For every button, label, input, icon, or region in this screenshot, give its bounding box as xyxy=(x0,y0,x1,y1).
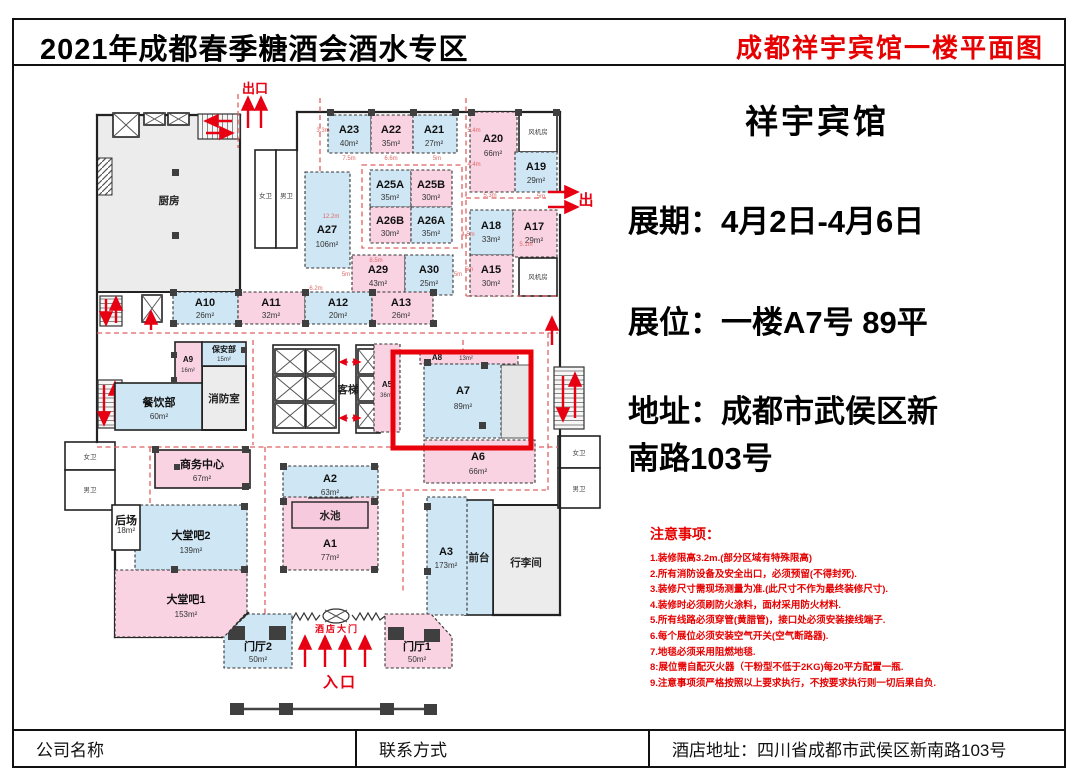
booth-a20: A2066m² xyxy=(470,112,517,192)
note-item: 5.所有线路必须穿管(黄腊管)，接口处必须安装接线端子. xyxy=(650,613,1050,629)
note-item: 6.每个展位必须安装空气开关(空气断路器). xyxy=(650,629,1050,645)
booth-a25b: A25B30m² xyxy=(411,170,452,207)
wc-female-label: 女卫 xyxy=(259,191,273,200)
exhibition-period: 展期：4月2日-4月6日 xyxy=(628,196,924,241)
note-item: 1.装修限高3.2m.(部分区域有特殊限高) xyxy=(650,551,1050,567)
booth-area: 50m² xyxy=(249,655,268,664)
booth-a10: A1026m² xyxy=(173,292,238,324)
dim-label: 4.4m xyxy=(467,162,480,168)
security-room: 保安部15m² xyxy=(202,342,246,366)
booth-id: A26A xyxy=(417,215,445,227)
booth-id: A20 xyxy=(483,133,503,145)
booth-id: 大堂吧2 xyxy=(171,528,210,542)
elevator-label: 客梯 xyxy=(337,383,359,396)
booth-a19: A1929m² xyxy=(515,152,557,192)
booth-id: A27 xyxy=(317,224,337,236)
kitchen-room: 厨房 xyxy=(97,115,240,292)
booth-id: A11 xyxy=(261,297,281,309)
booth-area: 30m² xyxy=(482,279,501,288)
fan-room-top: 风机房 xyxy=(519,112,557,152)
booth-a25a: A25A35m² xyxy=(370,170,411,207)
kitchen-label: 厨房 xyxy=(159,194,180,207)
booth-area: 173m² xyxy=(435,561,458,570)
booth-id: A25A xyxy=(376,179,404,191)
booth-a7: A789m² xyxy=(424,364,501,438)
booth-id: A18 xyxy=(481,220,501,232)
note-item: 7.地毯必须采用阻燃地毯. xyxy=(650,645,1050,661)
restrooms-left: 女卫 男卫 xyxy=(65,442,115,510)
booth-lobby1: 门厅150m² xyxy=(385,614,452,668)
booth-area: 60m² xyxy=(150,412,169,421)
booth-area: 153m² xyxy=(175,610,198,619)
hotel-name-title: 祥宇宾馆 xyxy=(745,95,889,143)
booth-area: 35m² xyxy=(422,229,441,238)
booth-id: A25B xyxy=(417,179,445,191)
booth-area: 139m² xyxy=(180,546,203,555)
address-line-1: 地址：成都市武侯区新 xyxy=(628,394,938,429)
note-item: 3.装修尺寸需现场测量为准.(此尺寸不作为最终装修尺寸). xyxy=(650,582,1050,598)
exit-right-label: 出 xyxy=(578,191,593,209)
booth-a11: A1132m² xyxy=(238,292,305,324)
booth-a3: A3173m² xyxy=(427,497,467,615)
booth-id: A21 xyxy=(424,124,444,136)
booth-id: A13 xyxy=(391,297,411,309)
booth-area: 63m² xyxy=(321,488,340,497)
booth-area: 32m² xyxy=(262,311,281,320)
booth-a26b: A26B30m² xyxy=(370,207,411,243)
booth-id: A22 xyxy=(381,124,401,136)
luggage-label: 行李间 xyxy=(509,556,542,569)
booth-lobby-bar2: 大堂吧2139m² xyxy=(135,505,247,570)
booth-id: 保安部 xyxy=(211,344,236,354)
wc-male-label: 男卫 xyxy=(84,486,98,494)
entrance: 入口 xyxy=(305,639,365,691)
dim-label: 5m xyxy=(465,267,473,273)
exit-top-label: 出口 xyxy=(242,81,268,96)
booth-area: 66m² xyxy=(469,467,488,476)
booth-a23: A2340m² xyxy=(328,115,371,153)
booth-area: 26m² xyxy=(196,311,215,320)
booth-id: A17 xyxy=(524,221,544,233)
stairs-right xyxy=(554,367,584,429)
lift-lobby xyxy=(501,365,531,438)
footer-bar: 公司名称 联系方式 酒店地址：四川省成都市武侯区新南路103号 xyxy=(12,729,1066,768)
booth-a30: A3025m² xyxy=(405,255,453,295)
wc-female-label: 女卫 xyxy=(84,452,98,461)
booth-area: 30m² xyxy=(422,193,441,202)
booth-a9: A916m² xyxy=(175,342,202,387)
restrooms-right: 女卫 男卫 xyxy=(558,436,600,508)
stairs-left-upper xyxy=(100,295,162,330)
restrooms-top: 女卫 男卫 xyxy=(255,150,297,248)
note-item: 2.所有消防设备及安全出口，必须预留(不得封死). xyxy=(650,567,1050,583)
booth-id: A29 xyxy=(368,264,388,276)
dim-label: 5.3m xyxy=(483,193,496,199)
booth-id: A3 xyxy=(439,546,453,558)
booth-area: 89m² xyxy=(454,402,473,411)
booth-id: A15 xyxy=(481,264,501,276)
booth-area: 27m² xyxy=(425,139,444,148)
booth-id: 门厅2 xyxy=(244,639,272,653)
booth-area: 29m² xyxy=(527,176,546,185)
backyard-room: 后场18m² xyxy=(112,505,140,550)
booth-id: A10 xyxy=(195,297,215,309)
booth-a12: A1220m² xyxy=(305,292,372,324)
booth-a5: A536m² xyxy=(374,344,400,432)
booth-location-line: 展位：一楼A7号 89平 xyxy=(628,297,928,342)
booth-area: 40m² xyxy=(340,139,359,148)
guest-elevators: 客梯 xyxy=(273,345,380,433)
front-desk-label: 前台 xyxy=(469,551,490,564)
booth-id: A2 xyxy=(323,473,337,485)
booth-area: 43m² xyxy=(369,279,388,288)
booth-id: 门厅1 xyxy=(403,639,431,653)
dim-label: 7.5m xyxy=(342,156,355,162)
booth-area: 33m² xyxy=(482,235,501,244)
dim-label: 5m xyxy=(342,272,350,278)
booth-area: 50m² xyxy=(408,655,427,664)
booth-area: 77m² xyxy=(321,553,340,562)
luggage-room: 行李间 xyxy=(493,505,560,615)
booth-area: 15m² xyxy=(217,357,231,363)
booth-area: 106m² xyxy=(316,240,339,249)
entrance-label: 入口 xyxy=(323,674,357,691)
booth-id: A23 xyxy=(339,124,359,136)
dim-label: 3.3m xyxy=(316,128,329,134)
booth-id: A30 xyxy=(419,264,439,276)
dim-label: 6.6m xyxy=(384,156,397,162)
booth-area: 67m² xyxy=(193,474,212,483)
dim-label: 5m xyxy=(537,194,545,200)
wc-male-label: 男卫 xyxy=(280,192,294,200)
booth-a21: A2127m² xyxy=(413,115,457,153)
booth-area: 13m² xyxy=(459,356,473,362)
booth-area: 35m² xyxy=(382,139,401,148)
dim-label: 5.4m xyxy=(467,128,480,134)
booth-id: A1 xyxy=(323,538,337,550)
booth-id: A12 xyxy=(328,297,348,309)
footer-contact-label: 联系方式 xyxy=(357,731,650,766)
header-right-title: 成都祥宇宾馆一楼平面图 xyxy=(736,28,1044,65)
footer-hotel-address: 酒店地址：四川省成都市武侯区新南路103号 xyxy=(650,731,1064,766)
booth-id: 商务中心 xyxy=(180,457,224,471)
hotel-gate: 酒店大门 xyxy=(292,609,385,634)
note-item: 4.装修时必须刷防火涂料，面材采用防火材料. xyxy=(650,598,1050,614)
catering-room: 餐饮部60m² xyxy=(115,383,202,430)
business-center: 商务中心67m² xyxy=(155,450,250,488)
booth-a22: A2235m² xyxy=(371,115,413,153)
address-line: 地址：成都市武侯区新 南路103号 xyxy=(628,388,1028,482)
address-line-2: 南路103号 xyxy=(628,441,773,476)
booth-area: 16m² xyxy=(181,368,195,374)
booth-area: 18m² xyxy=(117,526,136,535)
booth-a26a: A26A35m² xyxy=(411,207,452,243)
note-item: 9.注意事项须严格按照以上要求执行，不按要求执行则一切后果自负. xyxy=(650,676,1050,692)
booth-id: A19 xyxy=(526,161,546,173)
header-left-title: 2021年成都春季糖酒会酒水专区 xyxy=(40,26,469,68)
hotel-gate-label: 酒店大门 xyxy=(315,623,359,634)
dim-label: 6.2m xyxy=(309,286,322,292)
poster-page: 2021年成都春季糖酒会酒水专区 成都祥宇宾馆一楼平面图 祥宇宾馆 展期：4月2… xyxy=(0,0,1080,780)
booth-id: A9 xyxy=(183,355,194,364)
front-desk: 前台 xyxy=(465,500,493,615)
fan-room-label: 风机房 xyxy=(528,272,548,281)
booth-a17: A1729m² xyxy=(513,210,557,257)
booth-id: 后场 xyxy=(115,513,137,527)
dim-label: 4.5m xyxy=(461,232,474,238)
booth-a27: A27106m² xyxy=(305,172,350,268)
fire-control-room: 消防室 xyxy=(202,366,246,430)
booth-a15: A1530m² xyxy=(470,255,513,296)
pool-label: 水池 xyxy=(319,509,341,522)
notes-block: 注意事项： 1.装修限高3.2m.(部分区域有特殊限高) 2.所有消防设备及安全… xyxy=(650,524,1050,691)
exit-top: 出口 xyxy=(242,81,268,128)
booth-a18: A1833m² xyxy=(470,210,513,255)
wc-male-label: 男卫 xyxy=(573,485,587,493)
booth-area: 35m² xyxy=(381,193,400,202)
booth-area: 30m² xyxy=(381,229,400,238)
wc-female-label: 女卫 xyxy=(573,448,587,457)
booth-a13: A1326m² xyxy=(372,292,433,324)
fan-room-label: 风机房 xyxy=(528,127,548,136)
booth-a1: 水池 A177m² xyxy=(283,497,378,570)
stairs-top xyxy=(198,114,240,139)
booth-id: A26B xyxy=(376,215,404,227)
footer-company-label: 公司名称 xyxy=(14,731,357,766)
booth-area: 66m² xyxy=(484,149,503,158)
booth-id: 餐饮部 xyxy=(142,395,176,409)
booth-id: 大堂吧1 xyxy=(166,592,205,606)
fire-room-label: 消防室 xyxy=(208,392,240,405)
header-bar: 2021年成都春季糖酒会酒水专区 成都祥宇宾馆一楼平面图 xyxy=(12,18,1066,66)
dim-label: 5m xyxy=(433,156,441,162)
dim-label: 5m xyxy=(454,272,462,278)
booth-area: 26m² xyxy=(392,311,411,320)
dim-label: 5.1m xyxy=(519,242,532,248)
floor-plan: 厨房 消防室 行李间 前台 风机房 风机房 xyxy=(58,78,610,733)
notes-title: 注意事项： xyxy=(650,524,1050,544)
booth-area: 20m² xyxy=(329,311,348,320)
booth-id: A7 xyxy=(456,385,470,397)
fan-room-mid: 风机房 xyxy=(519,258,557,296)
note-item: 8:展位需自配灭火器（干粉型不低于2KG)每20平方配置一瓶. xyxy=(650,660,1050,676)
booth-id: A6 xyxy=(471,451,485,463)
dim-label: 12.2m xyxy=(323,214,340,220)
booth-lobby-bar1: 大堂吧1153m² xyxy=(115,570,247,637)
dim-label: 8.5m xyxy=(369,258,382,264)
booth-area: 25m² xyxy=(420,279,439,288)
